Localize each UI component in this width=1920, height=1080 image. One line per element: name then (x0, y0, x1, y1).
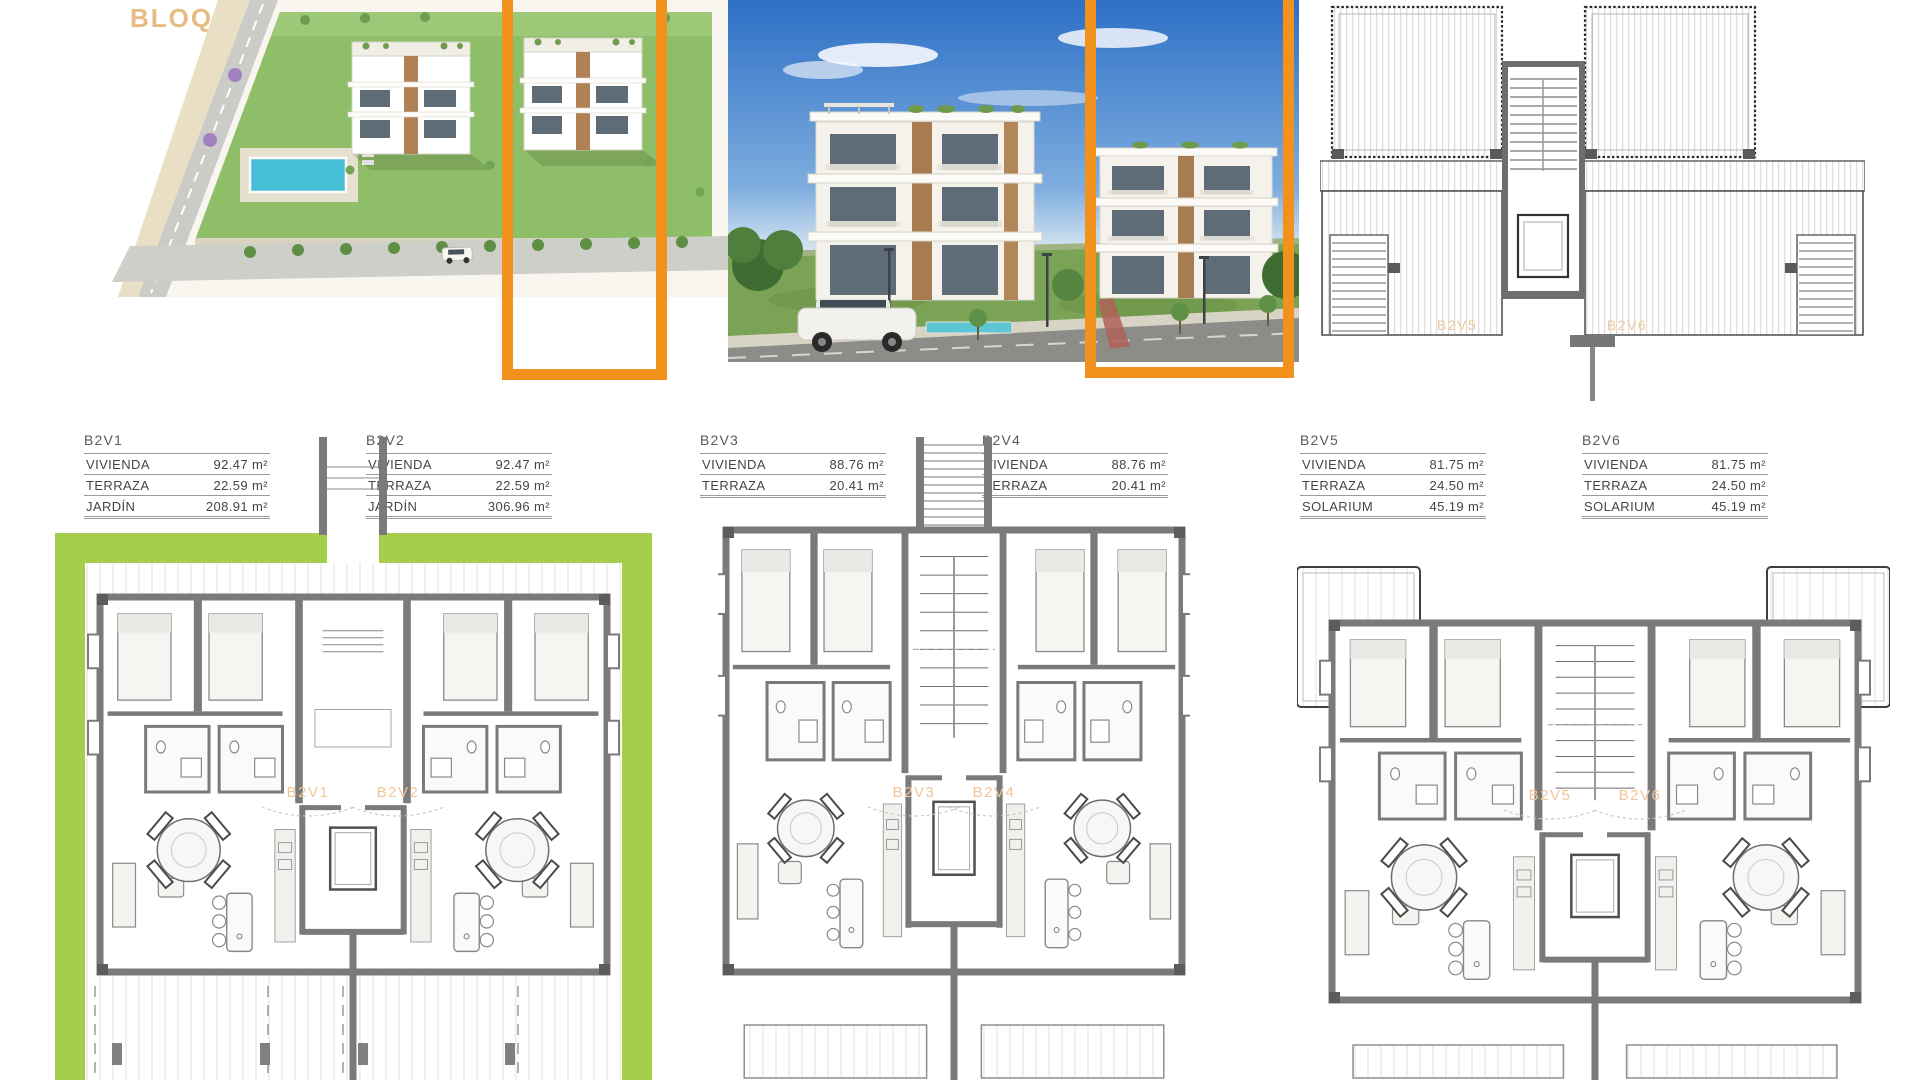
svg-text:B2V5: B2V5 (1437, 317, 1477, 333)
floor-plan-top: B2V5B2V6 (1297, 560, 1890, 1080)
pool (240, 148, 374, 202)
building-right (520, 38, 664, 166)
building-left (808, 103, 1042, 300)
brochure-page: BLOQUE 2 (0, 0, 1920, 1080)
floor-plan-top-svg: B2V5B2V6 (1297, 560, 1890, 1080)
table-row: TERRAZA24.50 m² (1582, 474, 1768, 495)
table-row: SOLARIUM45.19 m² (1582, 495, 1768, 516)
building-left (348, 42, 492, 170)
roof-plan-drawing: B2V5B2V6 (1320, 3, 1865, 401)
unit-table-b2v5: B2V5 VIVIENDA81.75 m² TERRAZA24.50 m² SO… (1300, 432, 1486, 519)
svg-text:B2V4: B2V4 (973, 784, 1016, 801)
table-row: VIVIENDA81.75 m² (1300, 453, 1486, 474)
street-rendering (728, 0, 1299, 362)
svg-text:B2V2: B2V2 (377, 784, 420, 801)
unit-table-b2v6: B2V6 VIVIENDA81.75 m² TERRAZA24.50 m² SO… (1582, 432, 1768, 519)
building-right (1094, 142, 1278, 299)
pool (926, 322, 1012, 333)
svg-text:B2V5: B2V5 (1529, 787, 1572, 804)
svg-text:B2V1: B2V1 (287, 784, 330, 801)
svg-text:B2V6: B2V6 (1619, 787, 1662, 804)
roof-plan-svg: B2V5B2V6 (1320, 3, 1865, 401)
svg-text:B2V6: B2V6 (1607, 317, 1647, 333)
table-row: VIVIENDA81.75 m² (1582, 453, 1768, 474)
floor-plan-ground-svg: B2V1B2V2 (55, 437, 652, 1080)
floor-plan-ground: B2V1B2V2 (55, 437, 652, 1080)
floor-plan-first: B2V3B2V4 (718, 437, 1190, 1080)
svg-text:B2V3: B2V3 (893, 784, 936, 801)
street-svg (728, 0, 1299, 362)
table-row: SOLARIUM45.19 m² (1300, 495, 1486, 516)
table-row: TERRAZA24.50 m² (1300, 474, 1486, 495)
floor-plan-first-svg: B2V3B2V4 (718, 437, 1190, 1080)
aerial-site-rendering (100, 0, 728, 307)
aerial-svg (100, 0, 728, 307)
unit-id: B2V6 (1582, 432, 1768, 448)
unit-id: B2V5 (1300, 432, 1486, 448)
